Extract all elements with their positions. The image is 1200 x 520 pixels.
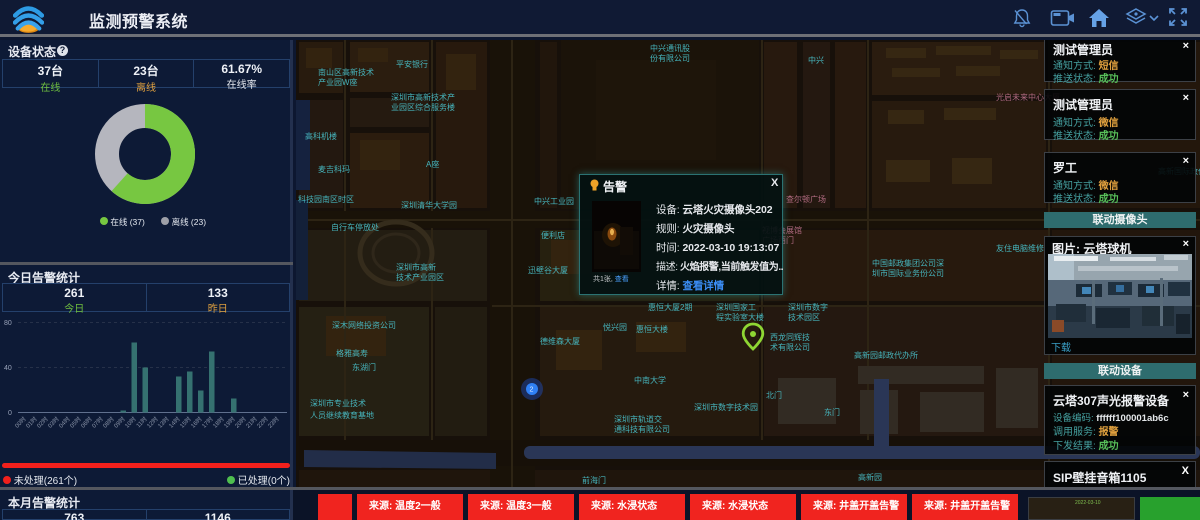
svg-text:14时: 14时 <box>167 415 182 430</box>
svg-text:深木网络投资公司: 深木网络投资公司 <box>332 320 396 330</box>
svg-text:西龙同辉技: 西龙同辉技 <box>770 332 810 342</box>
svg-text:高科机楼: 高科机楼 <box>305 131 337 141</box>
svg-text:深圳市数字: 深圳市数字 <box>788 302 828 312</box>
svg-text:2: 2 <box>530 387 534 394</box>
svg-text:东门: 东门 <box>824 407 840 417</box>
svg-text:德维森大厦: 德维森大厦 <box>540 336 580 346</box>
svg-text:08时: 08时 <box>101 415 116 430</box>
svg-text:01时: 01时 <box>24 415 39 430</box>
svg-text:21时: 21时 <box>244 415 259 430</box>
svg-text:深圳国家工: 深圳国家工 <box>716 302 756 312</box>
svg-text:22时: 22时 <box>255 415 270 430</box>
svg-text:深圳市轨道交: 深圳市轨道交 <box>614 414 662 424</box>
svg-text:深圳市数字技术园: 深圳市数字技术园 <box>694 402 758 412</box>
svg-text:麦吉科玛: 麦吉科玛 <box>318 164 350 174</box>
svg-text:技术产业园区: 技术产业园区 <box>396 272 444 282</box>
svg-text:北门: 北门 <box>766 390 782 400</box>
svg-text:09时: 09时 <box>112 415 127 430</box>
svg-text:悦兴园: 悦兴园 <box>603 322 627 332</box>
svg-text:17时: 17时 <box>200 415 215 430</box>
svg-text:平安银行: 平安银行 <box>396 59 428 69</box>
svg-text:程实验室大楼: 程实验室大楼 <box>716 312 764 322</box>
svg-text:高新园邮政代办所: 高新园邮政代办所 <box>854 350 918 360</box>
svg-text:友住电脑维修: 友住电脑维修 <box>996 243 1044 253</box>
svg-text:20时: 20时 <box>233 415 248 430</box>
svg-text:通科技有限公司: 通科技有限公司 <box>614 424 670 434</box>
svg-text:04时: 04时 <box>57 415 72 430</box>
svg-text:迅壁谷大厦: 迅壁谷大厦 <box>528 265 568 275</box>
svg-text:05时: 05时 <box>68 415 83 430</box>
svg-text:13时: 13时 <box>156 415 171 430</box>
svg-text:19时: 19时 <box>222 415 237 430</box>
svg-text:深圳市高新: 深圳市高新 <box>396 262 436 272</box>
svg-text:份有限公司: 份有限公司 <box>650 53 690 63</box>
svg-text:中国邮政集团公司深: 中国邮政集团公司深 <box>872 258 944 268</box>
svg-text:南山区高新技术: 南山区高新技术 <box>318 67 374 77</box>
svg-text:术有限公司: 术有限公司 <box>770 342 810 352</box>
svg-text:业园区综合服务楼: 业园区综合服务楼 <box>391 102 455 112</box>
svg-text:惠恒大楼: 惠恒大楼 <box>636 324 668 334</box>
svg-text:圳市国际业务份公司: 圳市国际业务份公司 <box>872 268 944 278</box>
svg-text:0: 0 <box>8 410 12 417</box>
svg-text:07时: 07时 <box>90 415 105 430</box>
svg-text:惠恒大厦2期: 惠恒大厦2期 <box>648 302 692 312</box>
svg-text:23时: 23时 <box>266 415 281 430</box>
svg-text:06时: 06时 <box>79 415 94 430</box>
svg-text:产业园W座: 产业园W座 <box>318 77 358 87</box>
svg-text:技术园区: 技术园区 <box>788 312 820 322</box>
svg-text:科技园南区时区: 科技园南区时区 <box>298 194 354 204</box>
svg-text:深圳市专业技术: 深圳市专业技术 <box>310 398 366 408</box>
svg-text:12时: 12时 <box>145 415 160 430</box>
svg-text:前海门: 前海门 <box>582 475 606 485</box>
svg-text:自行车停放处: 自行车停放处 <box>331 222 379 232</box>
svg-text:A座: A座 <box>426 159 439 169</box>
svg-text:中兴通讯股: 中兴通讯股 <box>650 43 690 53</box>
svg-text:03时: 03时 <box>46 415 61 430</box>
svg-text:便利店: 便利店 <box>541 230 565 240</box>
svg-text:11时: 11时 <box>134 415 148 429</box>
svg-text:40: 40 <box>4 365 12 372</box>
svg-text:深圳清华大学园: 深圳清华大学园 <box>401 200 457 210</box>
svg-text:查尔顿广场: 查尔顿广场 <box>786 194 826 204</box>
svg-text:格雅高寿: 格雅高寿 <box>336 348 368 358</box>
svg-text:中兴工业园: 中兴工业园 <box>534 196 574 206</box>
svg-text:中兴: 中兴 <box>808 55 824 65</box>
svg-text:02时: 02时 <box>35 415 50 430</box>
svg-text:深圳市高新技术产: 深圳市高新技术产 <box>391 92 455 102</box>
svg-text:东湖门: 东湖门 <box>352 362 376 372</box>
svg-text:18时: 18时 <box>211 415 226 430</box>
svg-text:中南大学: 中南大学 <box>634 375 666 385</box>
svg-text:人员继续教育基地: 人员继续教育基地 <box>310 410 374 420</box>
svg-text:高新园: 高新园 <box>858 472 882 482</box>
svg-text:10时: 10时 <box>123 415 138 430</box>
svg-text:80: 80 <box>4 320 12 327</box>
svg-text:16时: 16时 <box>189 415 204 430</box>
svg-text:00时: 00时 <box>13 415 28 430</box>
svg-text:15时: 15时 <box>178 415 193 430</box>
